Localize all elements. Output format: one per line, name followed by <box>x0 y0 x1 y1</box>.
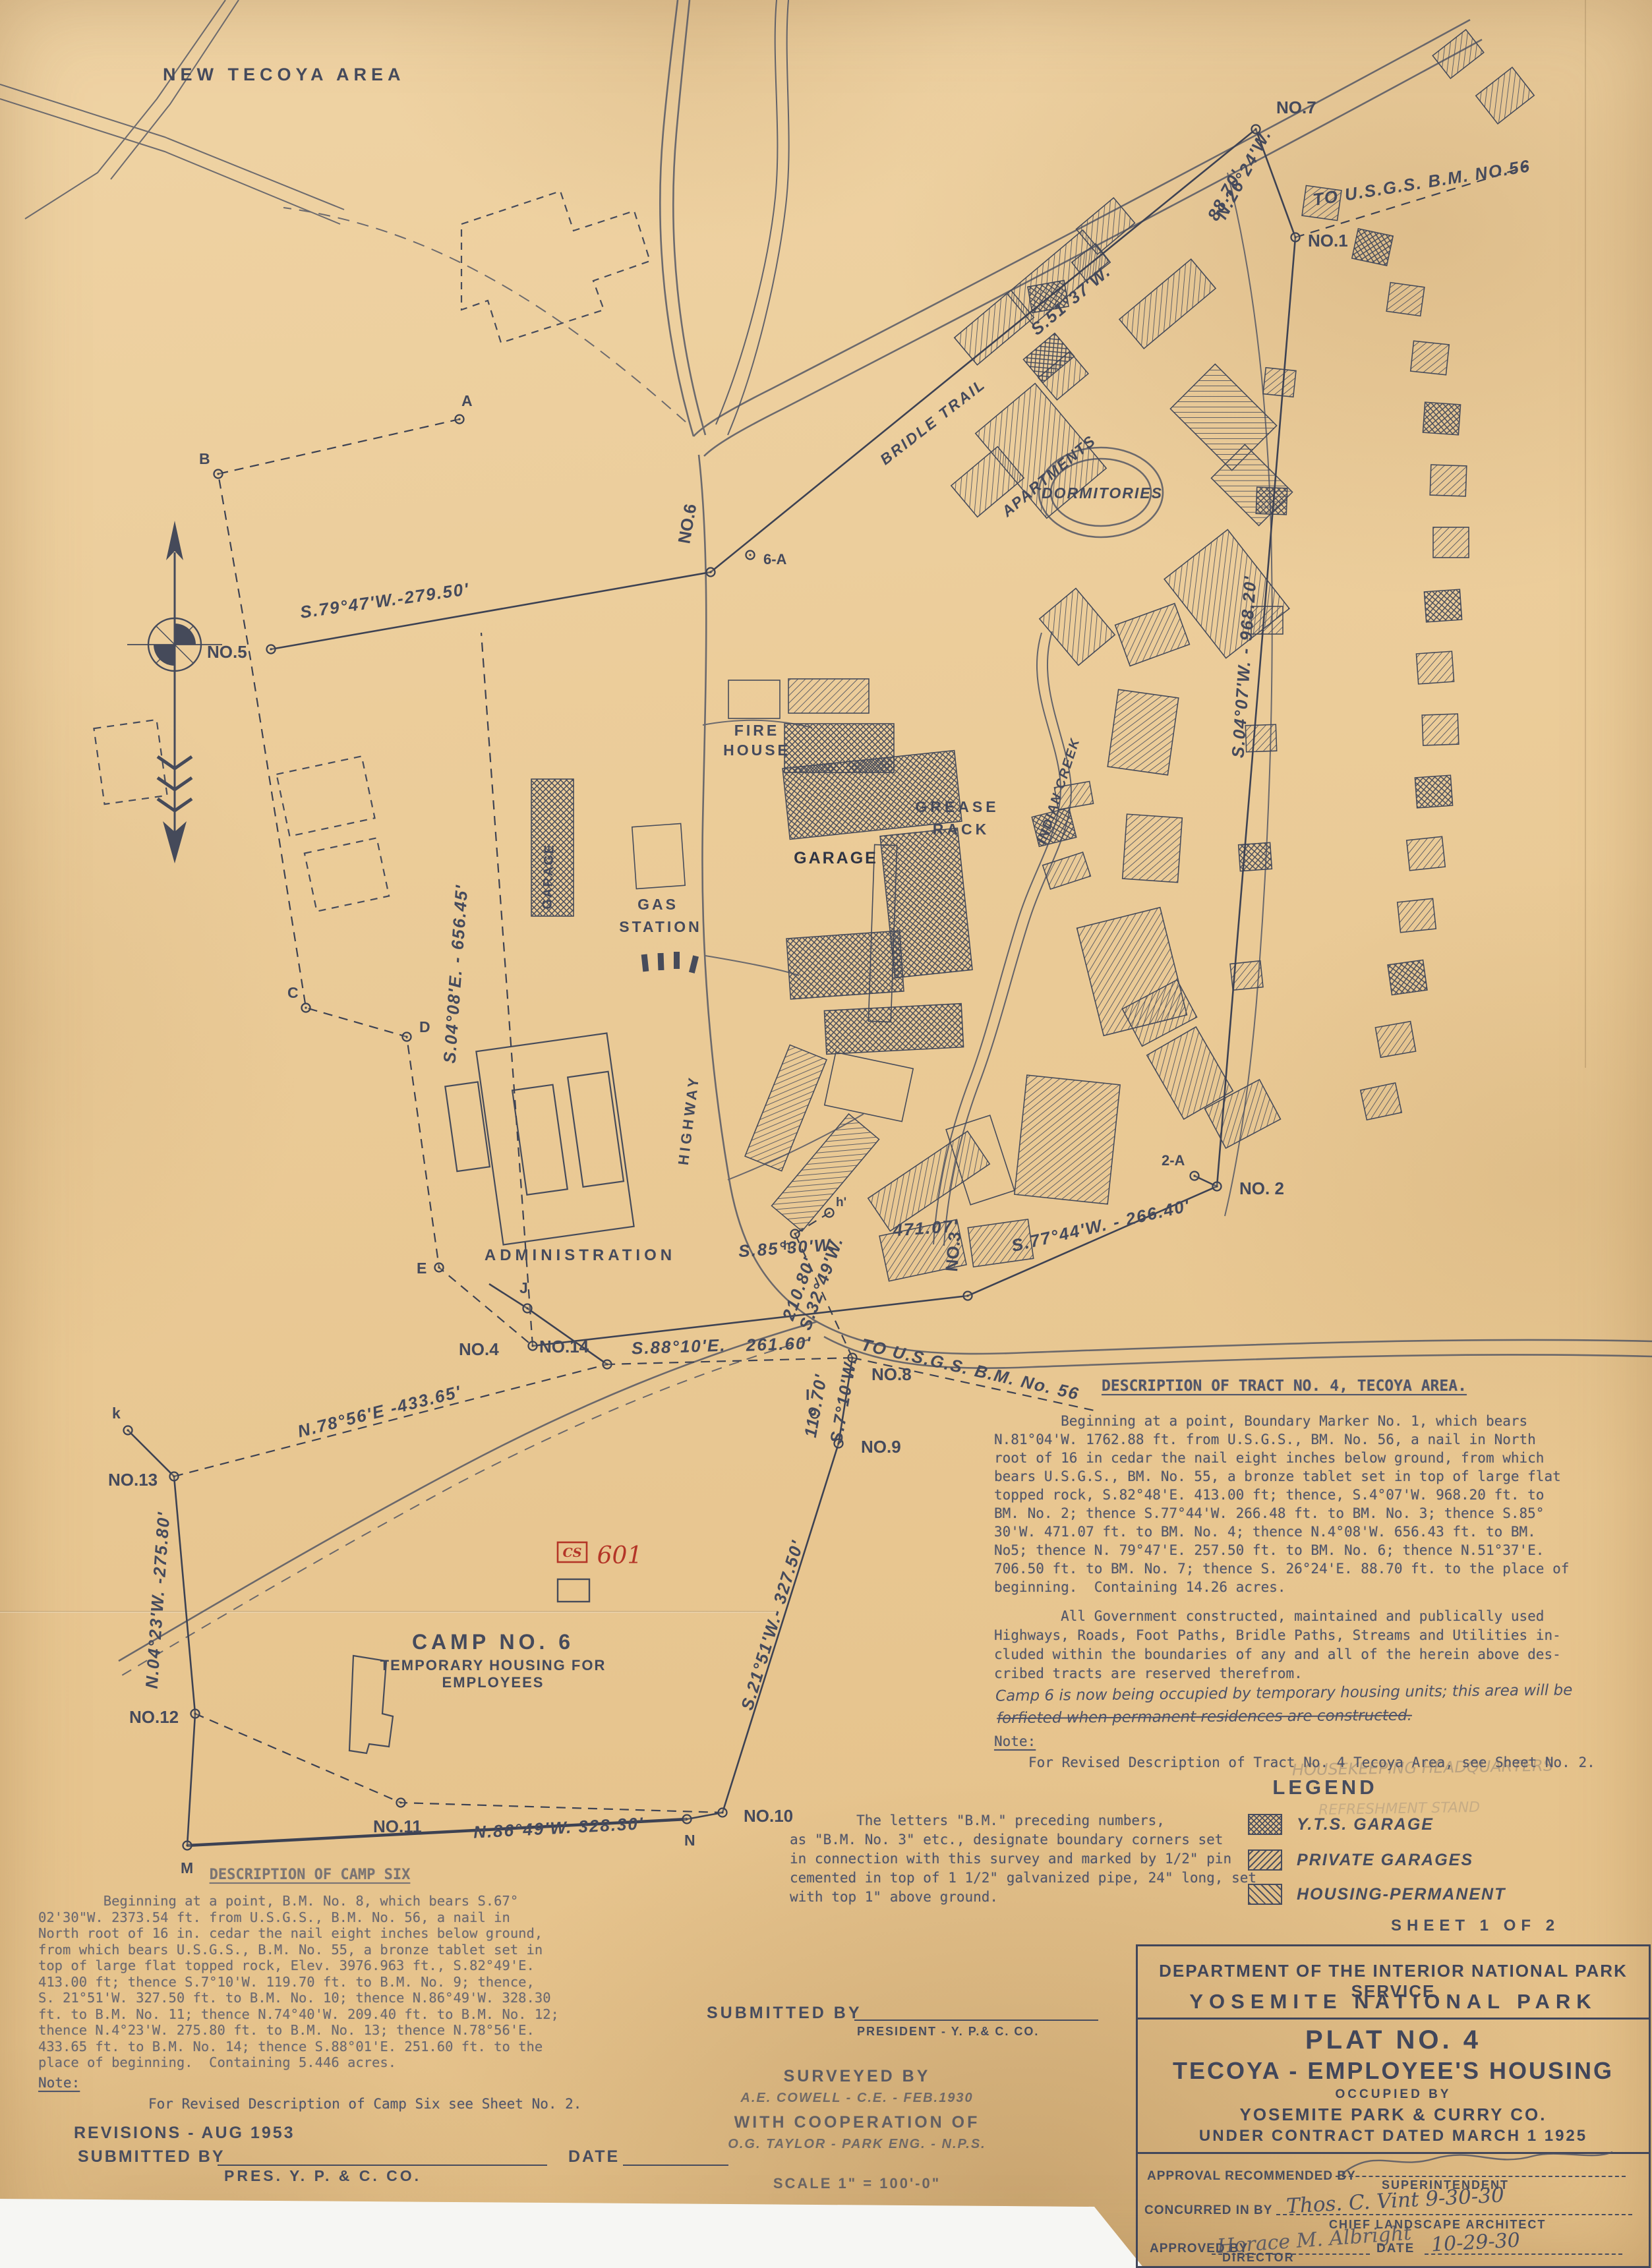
building <box>1040 589 1115 666</box>
survey-marker-label: NO.4 <box>459 1339 499 1359</box>
building <box>786 931 904 999</box>
title-block-park: YOSEMITE NATIONAL PARK <box>1138 1990 1649 2014</box>
survey-marker-label: NO.1 <box>1308 231 1348 250</box>
date-left-label: DATE <box>568 2147 620 2166</box>
gas-station-label-2: STATION <box>619 918 702 935</box>
survey-marker-label: NO.6 <box>674 502 700 545</box>
camp6-label-2: TEMPORARY HOUSING FOR <box>380 1657 606 1673</box>
survey-marker-label: J <box>519 1279 528 1296</box>
submitted-by-left-label: SUBMITTED BY <box>78 2147 225 2166</box>
building <box>1170 364 1276 470</box>
legend-title: LEGEND <box>1253 1776 1398 1799</box>
survey-marker-dot <box>405 1035 407 1037</box>
bm-note: The letters "B.M." preceding numbers, as… <box>790 1811 1256 1907</box>
bearing-label: N.86°49'W. 328.30' <box>473 1813 644 1842</box>
dormitories-label: DORMITORIES <box>1042 484 1163 502</box>
camp6-label-3: EMPLOYEES <box>442 1674 545 1691</box>
bearing-label: TO U.S.G.S. B.M. NO.56 <box>1311 156 1532 210</box>
survey-marker-dot <box>1294 236 1296 238</box>
building <box>1386 283 1425 316</box>
survey-marker-dot <box>305 1006 307 1008</box>
survey-marker-label: D <box>419 1018 430 1035</box>
director-caption: DIRECTOR <box>1222 2251 1295 2265</box>
fire-house-label-2: HOUSE <box>723 741 790 759</box>
survey-marker-dot <box>531 1345 533 1347</box>
submitted-by-mid-label: SUBMITTED BY <box>707 2004 862 2023</box>
bearing-label: S.88°10'E. <box>631 1335 726 1358</box>
legend-item-housing-permanent: HOUSING-PERMANENT <box>1248 1884 1506 1905</box>
legend-label-private-garages: PRIVATE GARAGES <box>1297 1851 1473 1870</box>
survey-marker-label: A <box>461 392 473 409</box>
survey-marker-dot <box>127 1429 129 1431</box>
survey-marker-label: NO.10 <box>744 1806 793 1826</box>
tract-description-title: DESCRIPTION OF TRACT NO. 4, TECOYA AREA. <box>994 1378 1574 1395</box>
building <box>1423 402 1460 435</box>
building <box>1115 604 1190 666</box>
building <box>1375 1022 1415 1058</box>
tract-note-label: Note: <box>994 1733 1036 1749</box>
title-block-occupied-by: OCCUPIED BY <box>1138 2087 1649 2102</box>
red-annotation: CS 601 <box>558 1542 642 1602</box>
survey-marker-dot <box>966 1294 968 1296</box>
survey-marker-label: NO.8 <box>871 1364 912 1384</box>
administration-building <box>441 1033 634 1250</box>
survey-marker-dot <box>709 571 711 573</box>
survey-marker-dot <box>1216 1185 1218 1187</box>
handwritten-camp-note-2: forfieted when permanent residences are … <box>997 1707 1412 1727</box>
cs-box-label: CS <box>563 1546 582 1560</box>
concurred-label: CONCURRED IN BY <box>1144 2203 1272 2218</box>
scanned-plat-page: NO.1NO. 22-ANO.3NO.4NO.5NO.66-ANO.7NO.8N… <box>0 0 1652 2268</box>
cooperator-name: O.G. TAYLOR - PARK ENG. - N.P.S. <box>712 2137 1002 2152</box>
grease-rack-label-1: GREASE <box>915 798 999 815</box>
survey-marker-dot <box>217 473 219 475</box>
survey-marker-label: NO.14 <box>539 1337 589 1356</box>
survey-marker-label: h' <box>836 1196 846 1209</box>
building <box>1245 724 1276 752</box>
bearing-label: 119.70' <box>800 1372 831 1439</box>
tract-description-body2: All Government constructed, maintained a… <box>994 1607 1561 1683</box>
survey-marker-label: N <box>684 1832 695 1849</box>
superintendent-signature-squiggle <box>1336 2144 1619 2177</box>
survey-marker-dot <box>794 1233 796 1235</box>
submitted-by-left-line <box>218 2165 547 2166</box>
garage-small-label: GARAGE <box>540 844 556 910</box>
building <box>1476 67 1534 124</box>
survey-marker-label: 2-A <box>1162 1152 1185 1169</box>
title-block-contract: UNDER CONTRACT DATED MARCH 1 1925 <box>1138 2127 1649 2145</box>
submitted-by-mid-line <box>854 2005 1098 2021</box>
title-block-company: YOSEMITE PARK & CURRY CO. <box>1138 2105 1649 2125</box>
building <box>824 1004 963 1055</box>
cs-number: 601 <box>597 1542 643 1569</box>
title-block: DEPARTMENT OF THE INTERIOR NATIONAL PARK… <box>1136 1944 1651 2268</box>
bridle-trail-label: BRIDLE TRAIL <box>877 375 989 468</box>
camp-note: For Revised Description of Camp Six see … <box>148 2096 581 2112</box>
buildings-layer <box>531 30 1534 1281</box>
building <box>1411 341 1450 374</box>
building <box>1416 651 1454 684</box>
building <box>745 1045 827 1171</box>
bearing-label: N.04°23'W. -275.80' <box>142 1511 174 1689</box>
survey-marker-dot <box>173 1475 175 1477</box>
pres-caption: PRES. Y. P. & C. CO. <box>224 2167 421 2185</box>
survey-marker-label: NO.9 <box>861 1437 901 1457</box>
building <box>1043 852 1091 889</box>
building <box>1407 836 1446 870</box>
title-block-divider-1 <box>1138 2018 1649 2020</box>
bearing-label: N.78°56'E -433.65' <box>295 1381 463 1441</box>
survey-marker-dot <box>721 1811 723 1813</box>
fire-house-label-1: FIRE <box>734 722 779 739</box>
survey-marker-label: NO.3 <box>941 1231 964 1272</box>
garage-main-label: GARAGE <box>794 849 878 867</box>
area-label: NEW TECOYA AREA <box>163 65 405 84</box>
survey-marker-label: E <box>417 1260 427 1277</box>
revisions-label: REVISIONS - AUG 1953 <box>74 2124 295 2143</box>
building <box>1361 1083 1401 1120</box>
president-caption: PRESIDENT - Y. P.& C. CO. <box>857 2025 1039 2039</box>
surveyed-by-label: SURVEYED BY <box>725 2067 989 2086</box>
survey-marker-label: NO.7 <box>1276 98 1316 117</box>
gas-pump-symbols <box>641 952 699 974</box>
legend-item-private-garages: PRIVATE GARAGES <box>1248 1849 1473 1871</box>
survey-marker-label: NO.11 <box>373 1817 422 1836</box>
approval-recommended-label: APPROVAL RECOMMENDED BY <box>1147 2169 1356 2184</box>
survey-marker-dot <box>1193 1175 1195 1177</box>
building <box>1398 898 1436 932</box>
highway-label: HIGHWAY <box>675 1074 703 1166</box>
survey-marker-label: NO.12 <box>129 1707 179 1727</box>
survey-marker-dot <box>606 1363 608 1365</box>
bearing-label: S.79°47'W.-279.50' <box>299 579 471 622</box>
camp-description-title: DESCRIPTION OF CAMP SIX <box>86 1867 534 1883</box>
ink-box <box>558 1579 589 1602</box>
building <box>1107 689 1179 775</box>
building <box>1119 259 1216 349</box>
concurred-signature-line <box>1276 2197 1632 2215</box>
gas-station-label-1: GAS <box>637 896 678 913</box>
bearing-label: S.21°51'W.- 327.50' <box>737 1538 808 1712</box>
survey-marker-dot <box>749 554 751 556</box>
tract-description-body: Beginning at a point, Boundary Marker No… <box>994 1412 1569 1596</box>
survey-marker-dot <box>828 1211 830 1213</box>
approved-date-label: DATE <box>1376 2242 1415 2256</box>
building <box>1123 814 1183 883</box>
survey-marker-label: k <box>112 1405 121 1422</box>
survey-marker-label: NO. 2 <box>1239 1178 1284 1198</box>
survey-marker-dot <box>194 1712 196 1714</box>
building <box>868 1131 989 1231</box>
building <box>1415 775 1452 808</box>
survey-marker-dot <box>438 1266 440 1268</box>
bearing-label: S.7°10'W. <box>826 1356 861 1445</box>
survey-marker-label: B <box>199 450 210 467</box>
camp6-label-1: CAMP NO. 6 <box>412 1630 574 1654</box>
building <box>1422 714 1459 745</box>
building <box>728 680 780 718</box>
approved-date-line <box>1425 2236 1622 2255</box>
legend-item-yts-garage: Y.T.S. GARAGE <box>1248 1814 1434 1835</box>
survey-marker-dot <box>399 1801 401 1803</box>
building <box>1433 527 1469 558</box>
sheet-number: SHEET 1 OF 2 <box>1391 1917 1560 1935</box>
title-block-plat: PLAT NO. 4 <box>1138 2025 1649 2055</box>
building <box>1263 368 1296 397</box>
legend-label-yts-garage: Y.T.S. GARAGE <box>1297 1815 1434 1834</box>
building <box>788 679 869 713</box>
north-arrow <box>127 521 222 863</box>
building <box>632 824 685 889</box>
survey-marker-dot <box>526 1307 528 1309</box>
building <box>1430 465 1467 496</box>
building <box>1352 229 1393 266</box>
legend-label-housing-permanent: HOUSING-PERMANENT <box>1297 1885 1506 1904</box>
surveyor-name: A.E. COWELL - C.E. - FEB.1930 <box>725 2091 989 2106</box>
survey-marker-dot <box>458 418 460 420</box>
survey-marker-label: 6-A <box>763 551 787 567</box>
bearing-label: S.77°44'W. - 266.40' <box>1009 1195 1192 1256</box>
building <box>1432 30 1484 78</box>
survey-marker-dot <box>270 648 272 650</box>
grease-rack-label-2: RACK <box>933 821 989 838</box>
title-block-title: TECOYA - EMPLOYEE'S HOUSING <box>1138 2057 1649 2085</box>
building <box>1424 589 1461 622</box>
survey-marker-dot <box>186 1844 188 1846</box>
survey-marker-label: NO.13 <box>108 1470 158 1490</box>
building <box>1388 960 1427 995</box>
camp-description-body: Beginning at a point, B.M. No. 8, which … <box>38 1893 559 2071</box>
bearing-label: 261.60' <box>745 1333 812 1354</box>
bearing-label: S.04°08'E. - 656.45' <box>440 883 472 1064</box>
survey-marker-label: C <box>287 984 299 1001</box>
building <box>825 1052 913 1121</box>
creeks <box>716 0 1071 1246</box>
camp-note-label: Note: <box>38 2075 80 2091</box>
administration-label: ADMINISTRATION <box>485 1246 676 1264</box>
cooperation-label: WITH COOPERATION OF <box>725 2113 989 2132</box>
date-left-line <box>623 2165 728 2166</box>
scale-label: SCALE 1" = 100'-0" <box>725 2175 989 2192</box>
survey-marker-dot <box>686 1818 688 1820</box>
building <box>1015 1075 1120 1204</box>
